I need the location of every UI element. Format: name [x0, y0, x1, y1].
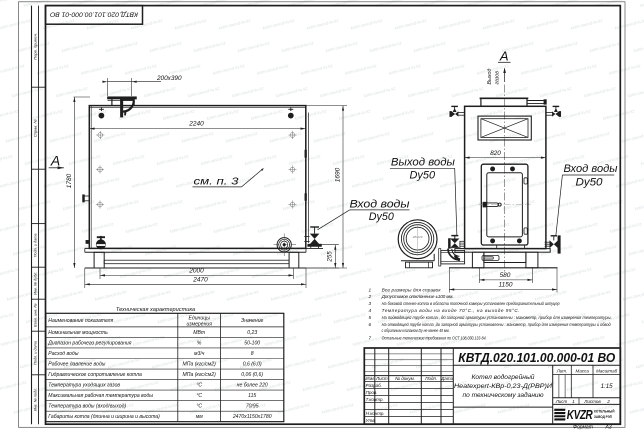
svg-text:2470х1150х1780: 2470х1150х1780: [232, 414, 272, 420]
svg-text:Подп. и дата: Подп. и дата: [34, 341, 38, 365]
svg-text:70/95: 70/95: [246, 404, 259, 410]
svg-text:Взам. инв. №: Взам. инв. №: [34, 303, 38, 326]
svg-text:Вход воды: Вход воды: [564, 163, 618, 175]
svg-text:На отводящей трубе котла ,до з: На отводящей трубе котла ,до запорной ар…: [382, 321, 611, 327]
svg-text:Допустимое отклонение ±100 мм: Допустимое отклонение ±100 мм.: [381, 294, 454, 299]
svg-text:2: 2: [606, 399, 610, 404]
svg-text:Подп.: Подп.: [425, 376, 437, 381]
svg-text:Heatexpert-КВр-0,23-Д(РВР)И: Heatexpert-КВр-0,23-Д(РВР)И: [454, 384, 553, 390]
svg-text:Подп. и дата: Подп. и дата: [34, 234, 38, 258]
svg-text:Справ. №: Справ. №: [33, 118, 38, 137]
svg-text:Температура уходящих газов: Температура уходящих газов: [48, 383, 120, 389]
svg-text:Пров.: Пров.: [366, 390, 378, 395]
svg-text:КОТЕЛЬНЫЙ: КОТЕЛЬНЫЙ: [594, 410, 615, 414]
svg-text:Техническая характеристика: Техническая характеристика: [116, 307, 195, 313]
svg-text:KVZR: KVZR: [567, 408, 593, 422]
svg-text:Dy50: Dy50: [410, 169, 436, 181]
svg-text:2240: 2240: [188, 121, 204, 128]
svg-text:Номинальная мощность: Номинальная мощность: [48, 330, 108, 336]
svg-text:Габариты котла (длинна и ширин: Габариты котла (длинна и ширина и высота…: [48, 414, 160, 420]
svg-text:ЗАВОД РЭП: ЗАВОД РЭП: [594, 415, 612, 419]
svg-text:%: %: [197, 340, 202, 346]
svg-text:МПа (кгс/см2): МПа (кгс/см2): [183, 362, 217, 368]
svg-text:0,23: 0,23: [247, 330, 257, 336]
svg-text:Выход: Выход: [487, 69, 493, 85]
svg-text:Н.контр.: Н.контр.: [366, 411, 385, 416]
svg-text:Гидравлическое сопротивление к: Гидравлическое сопротивление котла: [48, 372, 142, 378]
svg-text:по техническому заданию: по техническому заданию: [463, 393, 545, 399]
svg-text:Изм: Изм: [365, 376, 373, 381]
svg-text:№ докум.: № докум.: [395, 376, 415, 381]
svg-text:2: 2: [368, 294, 372, 299]
svg-text:Диапазон рабочего регулировани: Диапазон рабочего регулирования: [47, 340, 131, 346]
svg-text:Выход воды: Выход воды: [391, 157, 455, 169]
svg-text:1690: 1690: [334, 167, 341, 182]
svg-text:Утв.: Утв.: [366, 418, 376, 423]
svg-text:820: 820: [490, 150, 501, 157]
svg-text:Температура воды на входе 70°: Температура воды на входе 70°С., на выхо…: [382, 308, 520, 313]
svg-text:Дата: Дата: [440, 376, 453, 381]
svg-text:Расход воды: Расход воды: [48, 351, 78, 357]
svg-text:50-100: 50-100: [244, 340, 260, 346]
svg-text:°С: °С: [196, 383, 202, 389]
svg-text:Значение: Значение: [241, 318, 264, 324]
svg-text:КВ-029: КВ-029: [413, 235, 423, 239]
svg-text:0,06 (0,6): 0,06 (0,6): [241, 372, 263, 378]
svg-text:Лит.: Лит.: [556, 368, 568, 373]
svg-text:Температура воды (вход/выход): Температура воды (вход/выход): [48, 404, 126, 410]
svg-text:А: А: [499, 48, 509, 63]
svg-text:°С: °С: [196, 393, 202, 399]
svg-text:м3/ч: м3/ч: [194, 351, 205, 357]
svg-text:Перв. примен.: Перв. примен.: [33, 33, 38, 60]
svg-text:Максимальная рабочая температу: Максимальная рабочая температура воды: [48, 393, 153, 399]
svg-text:Dy50: Dy50: [576, 176, 604, 188]
svg-text:Формат: Формат: [573, 424, 593, 430]
svg-text:Рабочее давление воды: Рабочее давление воды: [48, 362, 105, 368]
svg-text:200х390: 200х390: [156, 75, 182, 82]
svg-text:измерения: измерения: [186, 321, 212, 327]
svg-text:Инв. № подл.: Инв. № подл.: [34, 388, 38, 412]
svg-text:7: 7: [369, 336, 372, 341]
svg-text:115: 115: [248, 393, 256, 399]
svg-text:0,6 (6,0): 0,6 (6,0): [243, 362, 262, 368]
svg-text:Dy50: Dy50: [369, 211, 395, 223]
svg-text:6: 6: [369, 322, 372, 327]
svg-text:Котел водогрейный: Котел водогрейный: [472, 374, 536, 381]
svg-text:Вход воды: Вход воды: [350, 198, 410, 210]
svg-text:Т.контр.: Т.контр.: [366, 397, 384, 402]
svg-text:МПа (кгс/см2): МПа (кгс/см2): [183, 372, 217, 378]
svg-text:1780: 1780: [66, 173, 73, 188]
svg-text:мм: мм: [196, 414, 203, 420]
svg-text:Инв. № дубл.: Инв. № дубл.: [34, 272, 38, 295]
svg-text:2000: 2000: [188, 268, 204, 275]
svg-text:А3: А3: [605, 424, 612, 430]
svg-text:255: 255: [326, 251, 333, 263]
svg-text:Масса: Масса: [576, 368, 590, 373]
svg-text:4: 4: [369, 308, 372, 313]
svg-text:не более 220: не более 220: [237, 383, 268, 389]
svg-text:Лист: Лист: [555, 399, 568, 404]
svg-text:Разраб.: Разраб.: [366, 383, 382, 388]
svg-text:А: А: [50, 153, 60, 169]
svg-text:Все размеры для справок: Все размеры для справок: [382, 288, 442, 293]
svg-text:Листов: Листов: [583, 399, 601, 404]
svg-text:1:15: 1:15: [601, 383, 614, 390]
svg-text:Лист: Лист: [375, 376, 388, 381]
svg-text:газов: газов: [495, 71, 501, 85]
svg-text:Наименование показателя: Наименование показателя: [48, 318, 113, 324]
svg-text:с обратным клапаном Dу не мен: с обратным клапаном Dу не менее 40 мм.: [382, 328, 450, 333]
svg-text:Масштаб: Масштаб: [596, 368, 617, 373]
svg-text:5: 5: [369, 315, 372, 320]
svg-text:КВТД.020.101.00.000-01 ВО: КВТД.020.101.00.000-01 ВО: [458, 350, 616, 365]
svg-text:8: 8: [251, 351, 254, 357]
svg-text:На боковой стенке котла в обла: На боковой стенке котла в области топочн…: [382, 300, 560, 306]
svg-text:На подводящей трубе котла ,: На подводящей трубе котла , до запорной …: [382, 314, 612, 320]
svg-text:Остальные технические требован: Остальные технические требования по ОСТ …: [382, 336, 487, 341]
svg-text:см. п. 3: см. п. 3: [194, 175, 239, 187]
svg-text:580: 580: [500, 272, 511, 279]
svg-text:1: 1: [369, 288, 372, 293]
svg-text:3: 3: [369, 301, 372, 306]
svg-text:МВт: МВт: [193, 330, 205, 336]
svg-text:КВТД.020.101.00.000-01 ВО: КВТД.020.101.00.000-01 ВО: [50, 11, 138, 18]
svg-text:2470: 2470: [192, 277, 208, 284]
svg-text:°С: °С: [196, 404, 202, 410]
svg-text:1150: 1150: [499, 282, 513, 289]
